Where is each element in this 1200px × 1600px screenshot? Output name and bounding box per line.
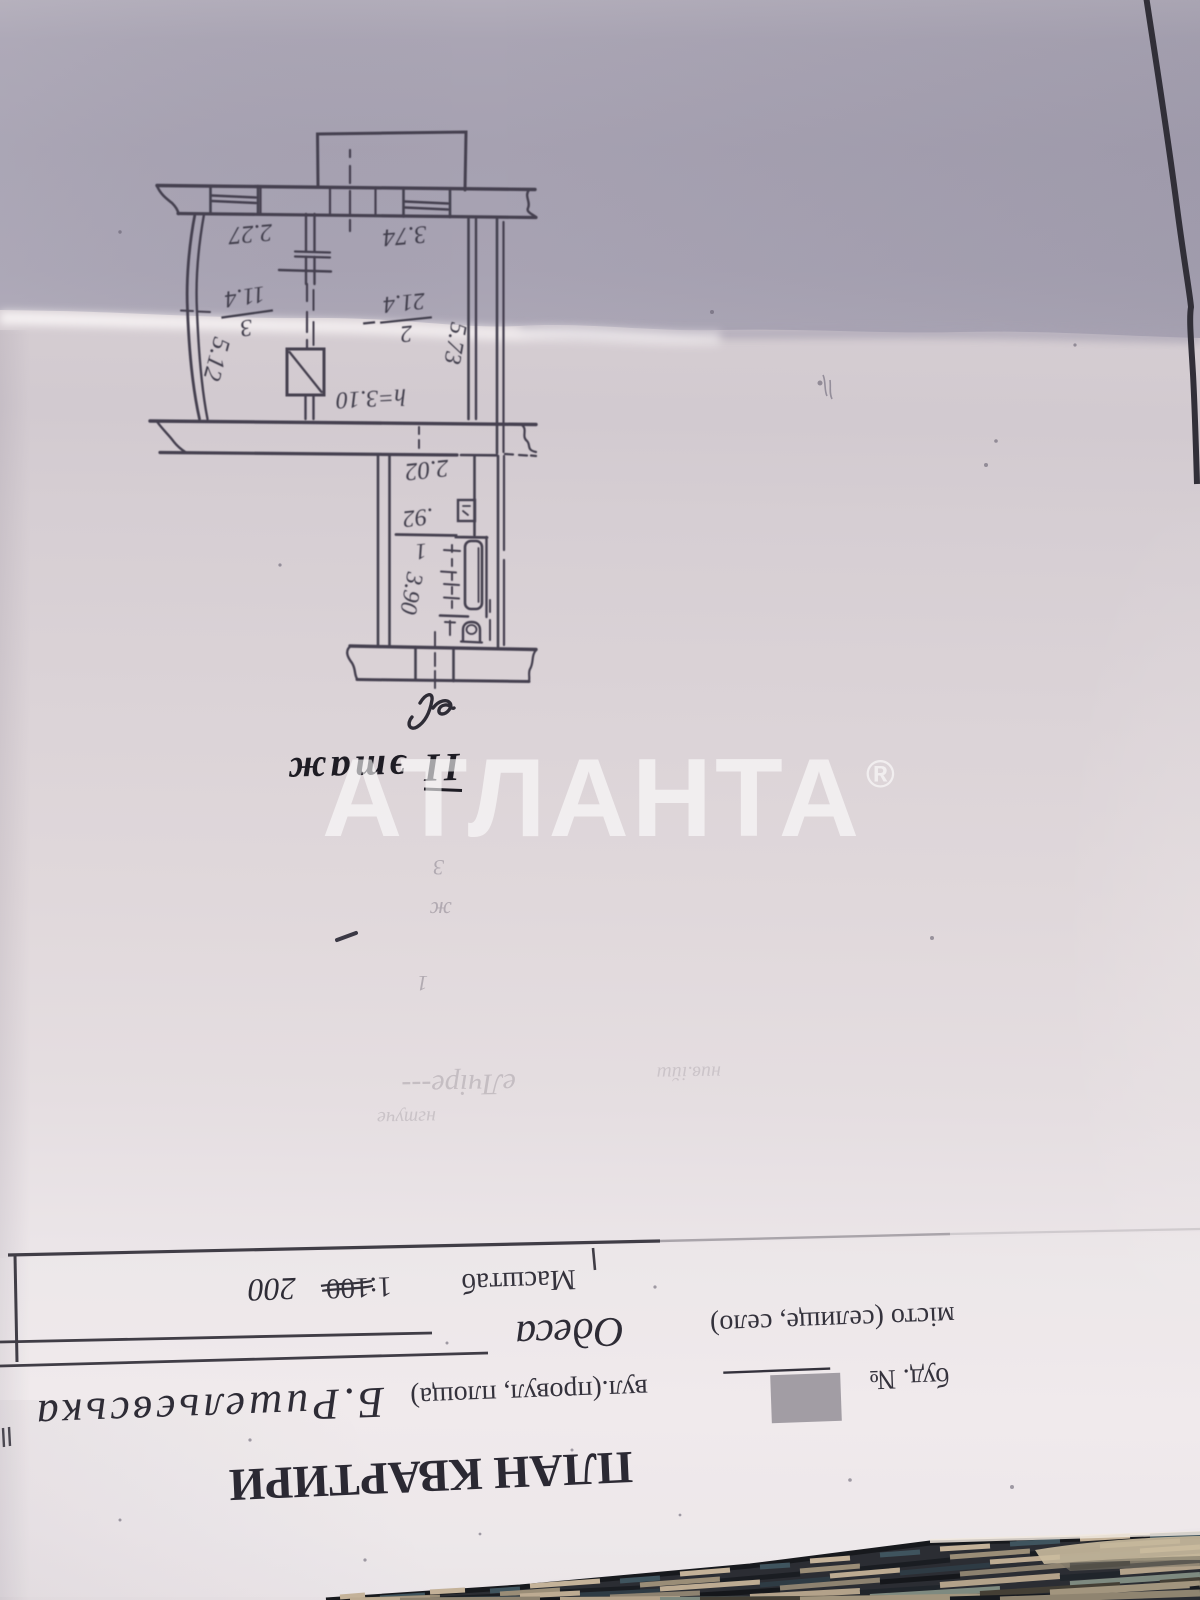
svg-text:Масштаб: Масштаб — [461, 1263, 577, 1299]
svg-text:нгтуче: нгтуче — [377, 1106, 436, 1129]
svg-text:2: 2 — [399, 319, 414, 346]
svg-text:3: 3 — [433, 855, 445, 880]
svg-text:h=3.10: h=3.10 — [335, 383, 406, 413]
svg-text:.92: .92 — [402, 503, 435, 532]
svg-text:1: 1 — [417, 971, 428, 996]
svg-text:еЛчіре---: еЛчіре--- — [401, 1067, 516, 1102]
svg-text:нив.ійш: нив.ійш — [656, 1061, 721, 1084]
svg-text:®: ® — [866, 753, 895, 796]
svg-text:ж: ж — [430, 896, 452, 922]
svg-text:5.12: 5.12 — [198, 334, 235, 383]
svg-text:21.4: 21.4 — [382, 287, 426, 317]
svg-text:буд. №: буд. № — [869, 1361, 951, 1395]
svg-text:3.90: 3.90 — [394, 569, 427, 616]
svg-text:АТЛАНТА: АТЛАНТА — [322, 736, 860, 860]
svg-text:11.4: 11.4 — [223, 280, 266, 311]
svg-text:Одеса: Одеса — [515, 1308, 625, 1358]
svg-text:2.27: 2.27 — [226, 218, 273, 249]
svg-text:1: 1 — [414, 538, 428, 564]
svg-text:3.74: 3.74 — [382, 220, 429, 251]
svg-text:2.02: 2.02 — [404, 454, 450, 485]
svg-text:200: 200 — [247, 1271, 296, 1309]
